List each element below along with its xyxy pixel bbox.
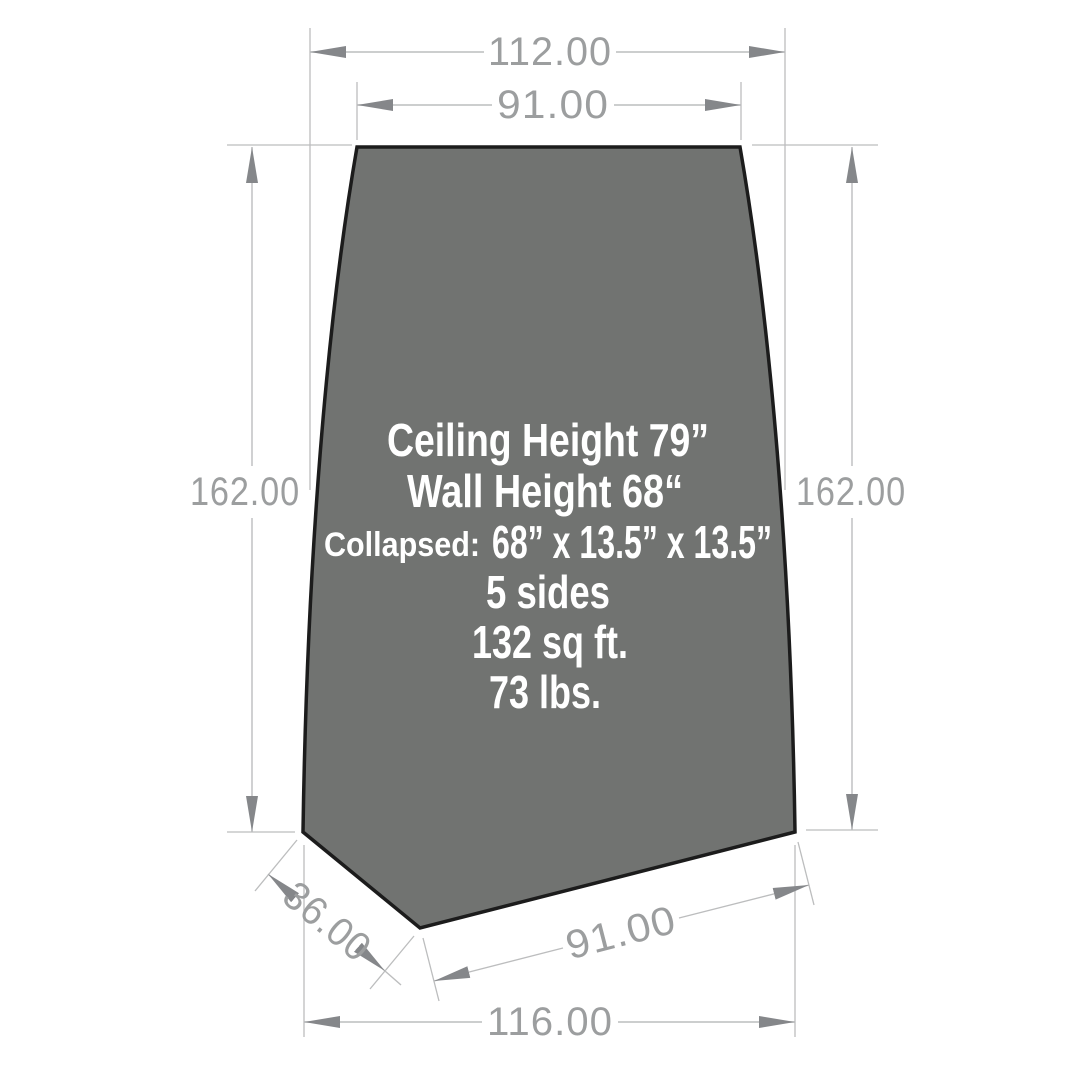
- dim-top-outer-label: 112.00: [488, 30, 612, 74]
- spec-sides: 5 sides: [486, 566, 610, 618]
- dim-bottom-right-edge-label: 91.00: [561, 898, 680, 968]
- dimension-line: [369, 957, 385, 971]
- spec-collapsed-size: 68” x 13.5” x 13.5”: [492, 516, 772, 568]
- dim-bottom-width-label: 116.00: [487, 1000, 613, 1044]
- extension-line: [255, 840, 297, 891]
- spec-wall-height: Wall Height 68“: [407, 465, 683, 517]
- spec-ceiling-height: Ceiling Height 79”: [387, 414, 709, 466]
- extension-line: [798, 842, 814, 905]
- extension-line: [370, 936, 414, 989]
- dimension-top-outer: 112.00: [310, 30, 785, 74]
- spec-collapsed-label: Collapsed:: [324, 526, 480, 564]
- tent-panel-dimension-drawing: 112.00 91.00 162.00 162.00 116.00 36.00 …: [0, 0, 1080, 1080]
- spec-area: 132 sq ft.: [472, 616, 628, 668]
- dimension-top-inner: 91.00: [357, 83, 741, 127]
- dimension-line: [268, 874, 284, 888]
- dim-right-height-label: 162.00: [796, 470, 906, 514]
- dimension-drawing-canvas: 112.00 91.00 162.00 162.00 116.00 36.00 …: [0, 0, 1080, 1080]
- dimension-line: [679, 885, 809, 918]
- extension-line: [423, 938, 439, 1001]
- dim-top-inner-label: 91.00: [497, 83, 609, 127]
- dimension-left-height: 162.00: [190, 147, 300, 832]
- dimension-line: [434, 948, 563, 981]
- dimension-right-height: 162.00: [796, 147, 906, 830]
- spec-weight: 73 lbs.: [489, 666, 601, 718]
- dimension-bottom-width: 116.00: [304, 1000, 795, 1044]
- dim-left-height-label: 162.00: [190, 470, 300, 514]
- dimension-line: [385, 971, 401, 985]
- dim-bottom-left-edge-label: 36.00: [274, 873, 379, 970]
